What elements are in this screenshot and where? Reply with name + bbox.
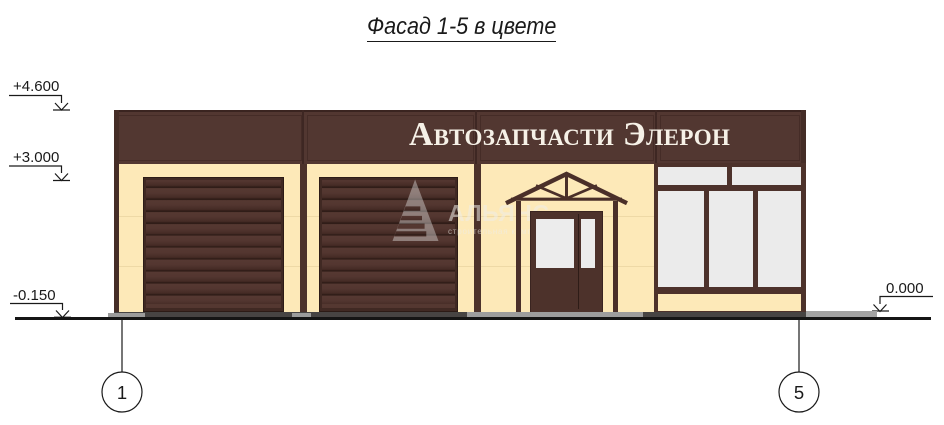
svg-text:5: 5	[794, 381, 804, 402]
svg-text:1: 1	[117, 381, 127, 402]
